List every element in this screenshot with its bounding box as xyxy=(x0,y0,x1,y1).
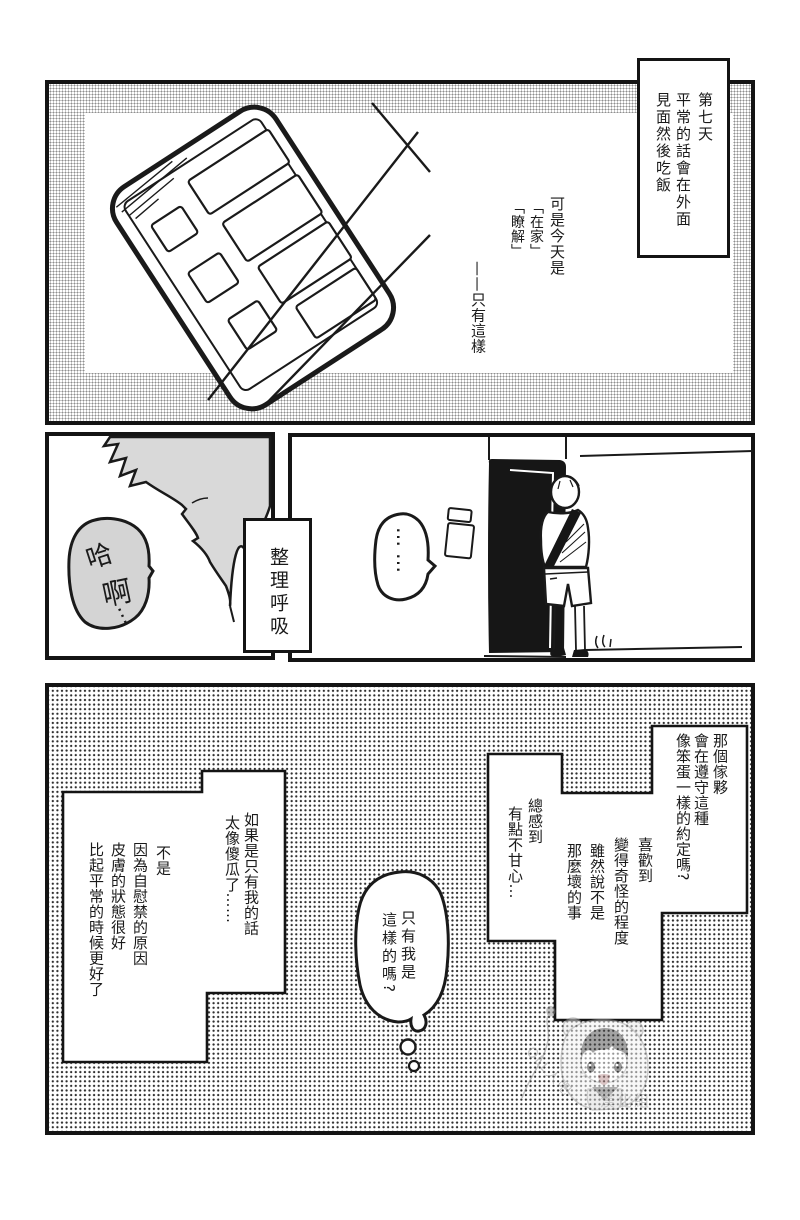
caption-days-col-1: 第七天 xyxy=(697,92,712,143)
panel-bottom xyxy=(45,683,755,1135)
caption-skin-col-4: 比起平常的時候更好了 xyxy=(88,842,103,997)
panel-top-inner-white xyxy=(85,113,733,373)
caption-breath-text: 整理呼吸 xyxy=(268,547,287,639)
caption-skin-col-3: 皮膚的狀態很好 xyxy=(110,842,125,951)
caption-weird-col-3: 雖然說不是 xyxy=(589,843,604,921)
panel-middle-left xyxy=(45,432,275,660)
caption-today-col-2: 「在家」 xyxy=(529,200,543,258)
caption-promise-col-3: 像笨蛋一樣的約定嗎? xyxy=(675,733,690,881)
caption-skin-col-1: 不是 xyxy=(155,845,170,876)
caption-promise-col-2: 會在遵守這種 xyxy=(693,733,708,826)
caption-today-col-3: 「瞭解」 xyxy=(510,200,524,258)
caption-weird-col-1: 喜歡到 xyxy=(637,837,652,884)
manga-page: { "panel1": { "caption_days": { "cols": … xyxy=(0,0,800,1220)
caption-bitter-col-2: 有點不甘心… xyxy=(507,806,522,899)
caption-days-col-2: 平常的話會在外面 xyxy=(675,92,690,228)
caption-skin-col-2: 因為自慰禁的原因 xyxy=(132,842,147,966)
caption-bitter-col-1: 總感到 xyxy=(527,798,542,845)
caption-fool-col-2: 太像傻瓜了…… xyxy=(224,815,239,924)
silence-ellipsis-text: …… xyxy=(394,527,414,579)
caption-weird-col-4: 那麼壞的事 xyxy=(566,843,581,921)
panel-middle-right xyxy=(288,433,755,662)
thought-text-col-2: 這樣的嗎? xyxy=(381,912,396,995)
caption-fool-col-1: 如果是只有我的話 xyxy=(243,812,258,936)
caption-today-col-4: ——只有這樣 xyxy=(470,261,485,354)
caption-days-col-3: 見面然後吃飯 xyxy=(655,92,670,194)
caption-weird-col-2: 變得奇怪的程度 xyxy=(613,837,628,946)
caption-today-col-1: 可是今天是 xyxy=(549,196,564,276)
thought-text-col-1: 只有我是 xyxy=(400,910,415,982)
caption-promise-col-1: 那個傢夥 xyxy=(712,733,727,795)
